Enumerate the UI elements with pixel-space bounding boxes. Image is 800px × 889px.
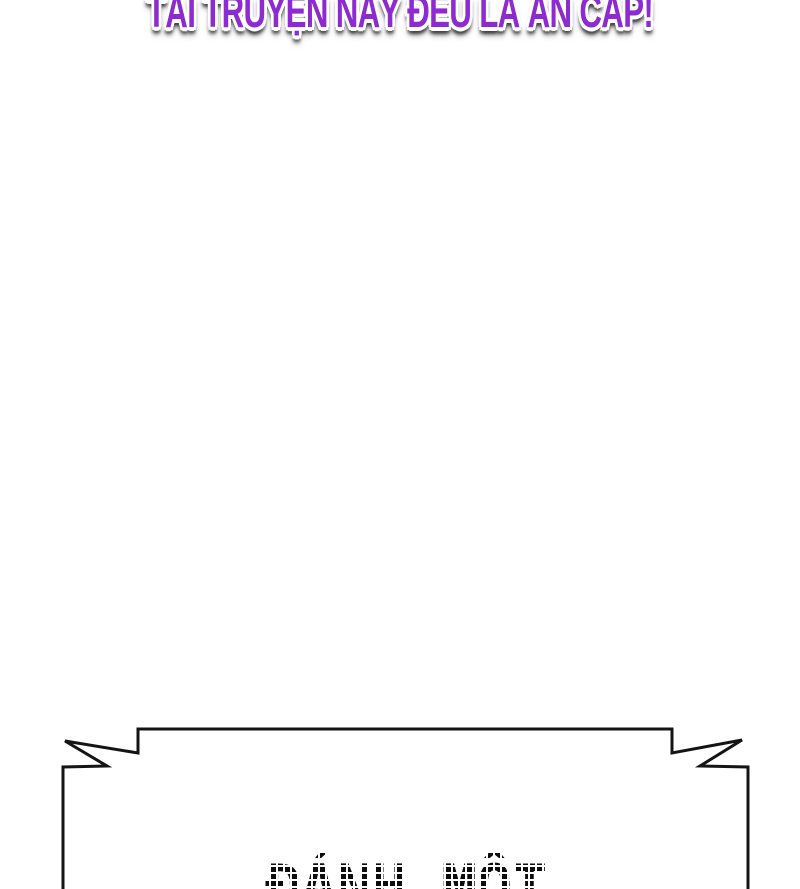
comic-page: TẢI TRUYỆN NÀY ĐỀU LÀ ĂN CẮP! ĐÁNH MỘT bbox=[0, 0, 800, 889]
banner-title-text: ĐÁNH MỘT bbox=[266, 857, 547, 889]
ribbon-banner bbox=[0, 0, 800, 889]
